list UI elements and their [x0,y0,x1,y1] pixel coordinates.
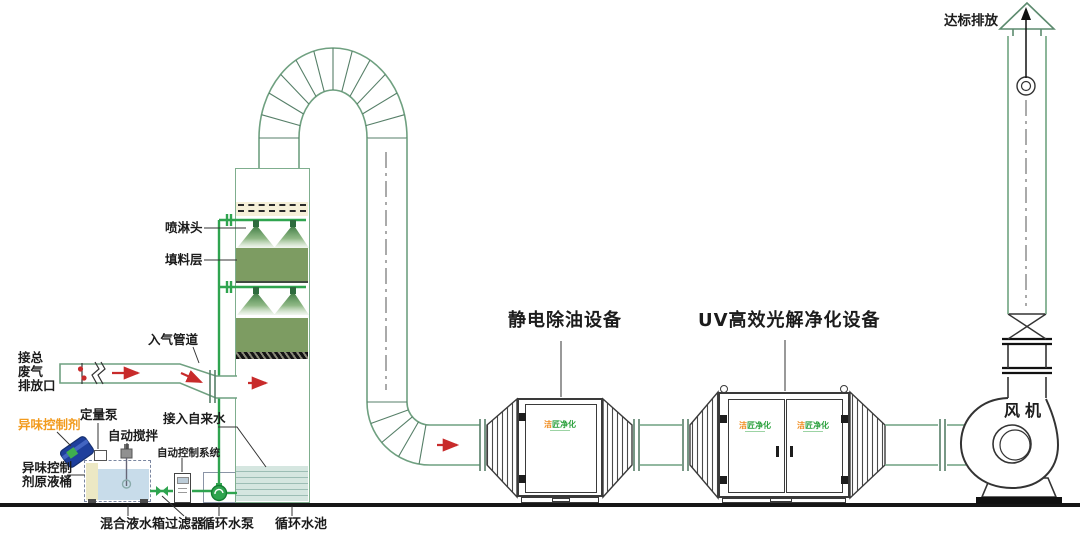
filter-icon [156,486,168,496]
brand-logo-first: 洁 [797,421,805,430]
waste-gas-inlet-duct [60,362,237,403]
circulation-riser-pipe [219,214,306,487]
duct-diffusers [487,392,885,498]
label-circulation-pool: 循环水池 [275,518,327,532]
label-emission: 达标排放 [944,14,998,28]
brand-logo: 洁匠净化 [791,421,835,432]
label-waste-gas-inlet: 接总 废气 排放口 [18,351,56,393]
label-mixing-tank: 混合液水箱 [100,518,165,532]
tower-outlet-arch-duct [259,48,485,471]
brand-logo-subline [803,431,823,432]
brand-logo: 洁匠净化 [733,421,777,432]
brand-logo-rest: 匠净化 [805,421,829,430]
brand-logo-rest: 匠净化 [747,421,771,430]
brand-logo-first: 洁 [544,420,552,429]
label-auto-stir: 自动搅拌 [108,429,158,443]
brand-logo: 洁匠净化 [538,420,582,431]
sampling-port-icon [1017,77,1035,95]
gas-treatment-diagram: 洁匠净化 洁匠净化 洁匠净化 [0,0,1080,543]
exhaust-stack [1000,3,1054,373]
brand-logo-rest: 匠净化 [552,420,576,429]
label-circulation-pump: 循环水泵 [202,518,254,532]
label-filter: 过滤器 [165,518,204,532]
label-odor-agent: 异味控制剂 [18,418,81,432]
label-spray-head: 喷淋头 [165,221,203,235]
label-uv-title: UV高效光解净化设备 [698,314,881,328]
label-tap-water: 接入自来水 [163,412,226,426]
label-esp-title: 静电除油设备 [508,314,622,328]
label-metering-pump: 定量泵 [80,408,118,422]
brand-logo-subline [745,431,765,432]
stirrer [121,444,132,488]
brand-logo-first: 洁 [739,421,747,430]
label-inlet-duct: 入气管道 [148,333,198,347]
circulation-pump-icon [212,483,227,501]
centrifugal-fan [961,377,1062,504]
label-fan: 风机 [1004,404,1046,418]
flex-connector-icon [1008,314,1046,339]
label-control-system: 自动控制系统 [157,446,220,460]
label-packing-layer: 填料层 [165,253,203,267]
brand-logo-subline [550,430,570,431]
spray-nozzles [237,220,309,315]
label-agent-barrel: 异味控制 剂原液桶 [22,461,72,489]
circulation-pipework [150,483,237,501]
